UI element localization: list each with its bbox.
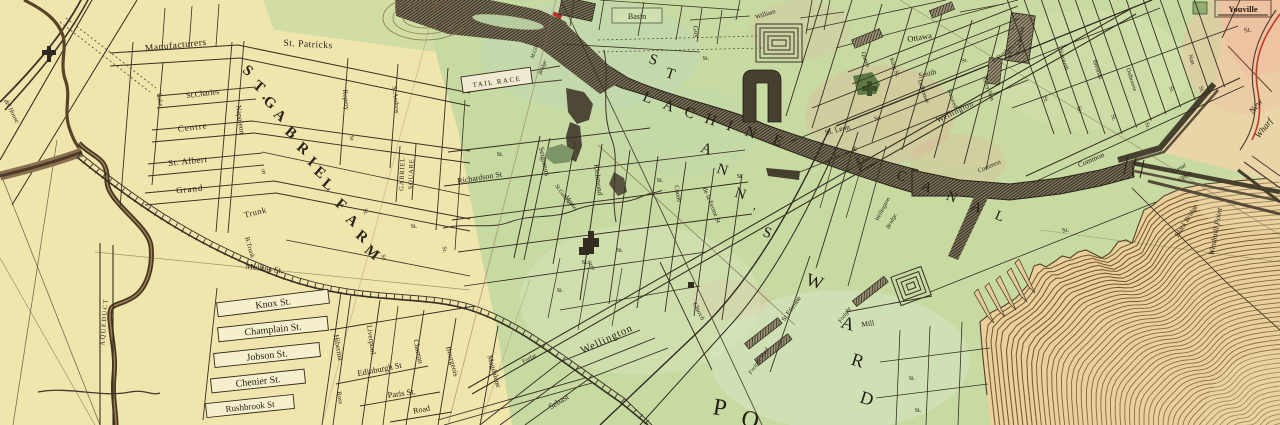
svg-text:St.: St. [557,288,564,294]
svg-text:SQUARE: SQUARE [407,158,415,189]
svg-text:Youville: Youville [1228,4,1258,14]
svg-text:St.: St. [909,376,916,382]
svg-text:Basin: Basin [628,12,646,21]
svg-text:GABRIEL: GABRIEL [398,157,406,191]
svg-text:St.: St. [411,224,418,230]
svg-text:St.: St. [617,248,624,254]
svg-text:St.: St. [737,174,744,180]
svg-text:St.: St. [657,178,664,184]
svg-text:St.: St. [915,408,922,414]
svg-text:St: St [348,135,355,141]
svg-text:Mill: Mill [861,318,875,329]
svg-text:St.: St. [702,56,710,63]
svg-text:St.: St. [497,152,504,158]
